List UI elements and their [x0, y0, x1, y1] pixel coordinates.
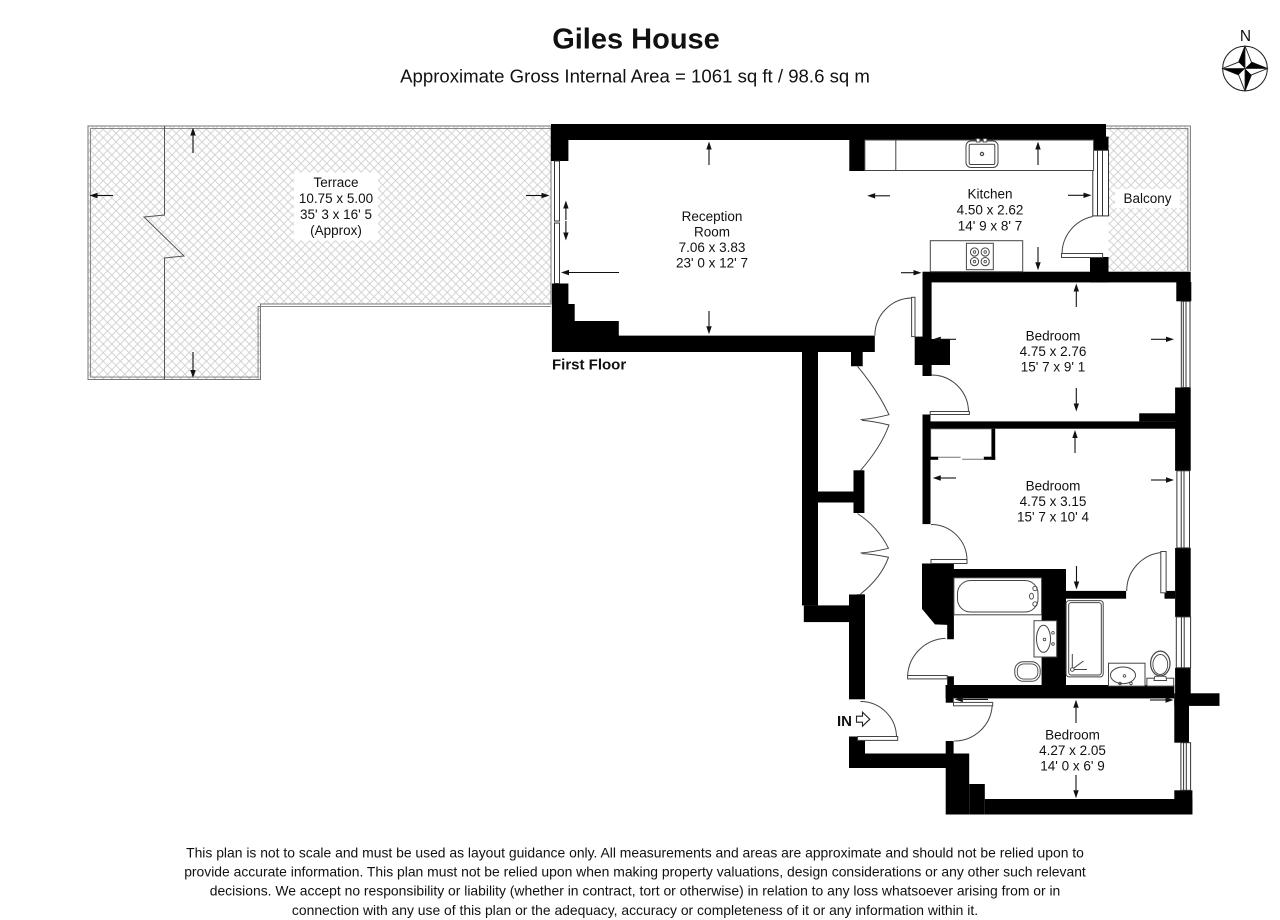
svg-text:Reception: Reception — [682, 209, 743, 224]
svg-text:14' 0 x 6' 9: 14' 0 x 6' 9 — [1040, 759, 1104, 774]
svg-text:15' 7 x 10' 4: 15' 7 x 10' 4 — [1017, 510, 1089, 525]
svg-text:provide accurate information.: provide accurate information. This plan … — [184, 864, 1086, 880]
svg-text:Bedroom: Bedroom — [1026, 329, 1081, 344]
svg-text:Terrace: Terrace — [313, 175, 358, 190]
svg-text:4.27 x 2.05: 4.27 x 2.05 — [1039, 743, 1106, 758]
svg-text:N: N — [1240, 28, 1251, 45]
svg-text:15' 7 x 9' 1: 15' 7 x 9' 1 — [1021, 360, 1085, 375]
svg-text:4.50 x 2.62: 4.50 x 2.62 — [957, 203, 1024, 218]
svg-text:connection with any use of thi: connection with any use of this plan or … — [292, 902, 978, 918]
svg-text:Approximate Gross Internal Are: Approximate Gross Internal Area = 1061 s… — [400, 66, 870, 87]
svg-text:4.75 x 3.15: 4.75 x 3.15 — [1020, 494, 1087, 509]
svg-text:7.06 x 3.83: 7.06 x 3.83 — [679, 240, 746, 255]
svg-text:Bedroom: Bedroom — [1026, 479, 1081, 494]
svg-text:(Approx): (Approx) — [310, 223, 362, 238]
svg-text:decisions. We accept no respon: decisions. We accept no responsibility o… — [210, 883, 1061, 899]
svg-text:IN: IN — [837, 713, 852, 730]
svg-text:Room: Room — [694, 225, 730, 240]
svg-text:Giles House: Giles House — [552, 24, 720, 56]
svg-text:First Floor: First Floor — [552, 357, 626, 374]
svg-text:Kitchen: Kitchen — [967, 187, 1012, 202]
svg-text:4.75 x 2.76: 4.75 x 2.76 — [1020, 344, 1087, 359]
svg-text:Balcony: Balcony — [1123, 191, 1171, 206]
svg-text:23' 0 x 12' 7: 23' 0 x 12' 7 — [676, 256, 748, 271]
svg-text:This plan is not to scale and: This plan is not to scale and must be us… — [186, 845, 1084, 861]
svg-text:10.75 x 5.00: 10.75 x 5.00 — [299, 191, 373, 206]
svg-text:35' 3 x 16' 5: 35' 3 x 16' 5 — [300, 207, 372, 222]
svg-text:14' 9 x 8' 7: 14' 9 x 8' 7 — [958, 219, 1022, 234]
svg-text:Bedroom: Bedroom — [1045, 728, 1100, 743]
